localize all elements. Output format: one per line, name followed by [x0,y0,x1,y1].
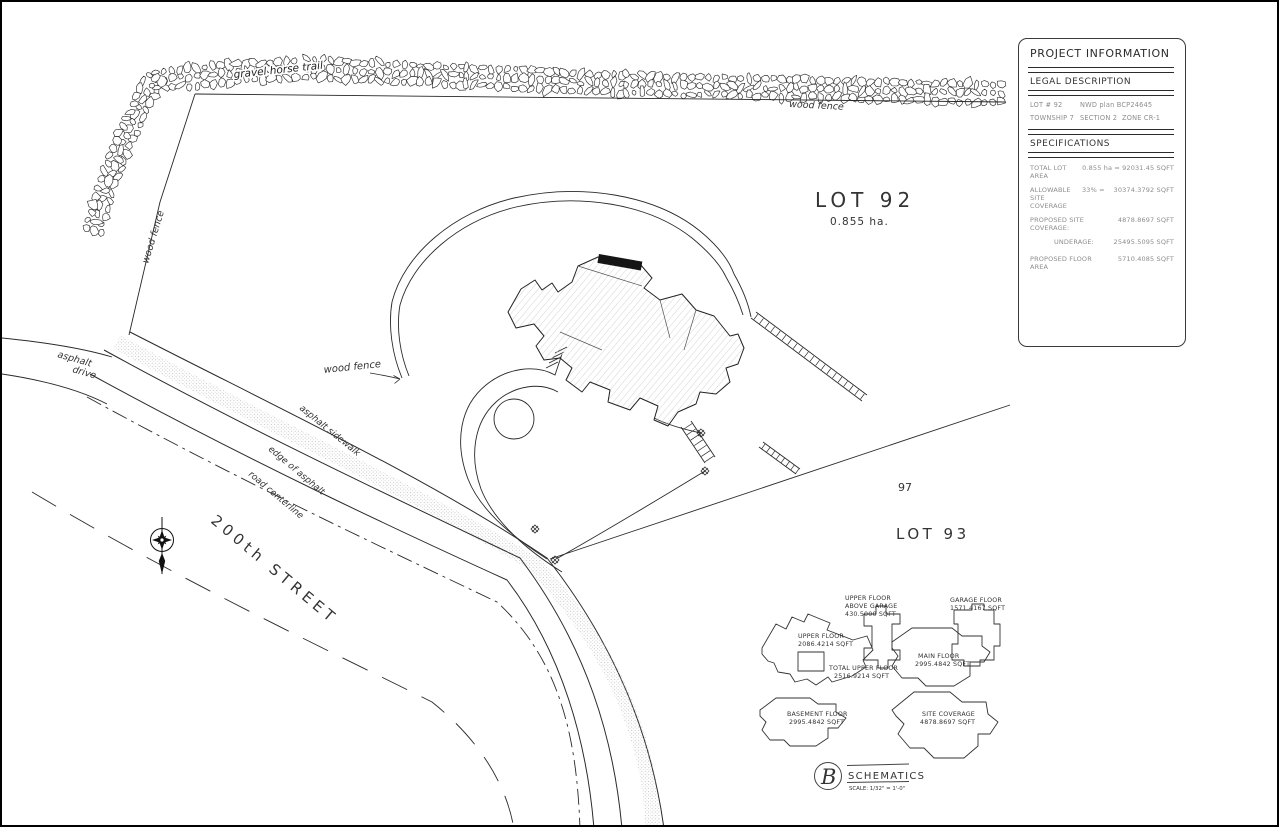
cobble-stone [316,71,328,83]
cobble-stone [858,86,866,98]
cobble-stone [932,88,938,95]
lot92-area: 0.855 ha. [830,216,889,228]
cobble-stone [302,74,309,80]
cobble-stone [459,72,464,78]
logo-scale: SCALE: 1/32" = 1'-0" [849,786,905,792]
divider [1028,129,1174,135]
cobble-stone [990,99,996,106]
cobble-stone [714,81,720,89]
cobble-stone [107,198,114,205]
cobble-stone [386,62,391,68]
hatch-tick [810,356,814,361]
cobble-stone [982,81,990,87]
garage-floor-area: 1571.4167 SQFT [950,605,1005,612]
stairs [681,421,715,463]
cobble-stone [738,76,744,82]
cobble-stone [865,96,873,105]
cobble-stone [358,75,368,83]
hatch-tick [776,331,780,336]
hatch-tick [804,352,808,357]
road-far-dash-curve [32,492,514,827]
hatch-tick [791,465,795,470]
cobble-stone [169,73,178,81]
cobble-stone [970,89,981,96]
planter-circle [494,399,534,439]
cobble-stone [611,76,618,88]
cobble-stone [109,144,117,153]
cobble-stone [536,83,543,94]
cobble-stone [568,88,576,94]
legal-row-1: LOT # 92 NWD plan BCP24645 [1030,101,1174,109]
sidewalk-outer-curve [104,350,622,827]
cobble-stone [132,93,140,100]
spec-label: PROPOSED SITE COVERAGE: [1030,216,1108,232]
street-name-label: 200th STREET [207,511,341,628]
spec-value: 0.855 ha = 92031.45 SQFT [1082,164,1174,172]
cobble-stone [998,91,1005,98]
cobble-stone [443,65,448,70]
spec-percent: 33% = [1082,186,1108,194]
cobble-stone [833,77,840,84]
road-curves [2,332,664,827]
compass-needle [159,553,165,574]
logo-name: SCHEMATICS [848,771,925,782]
cobble-stone [808,92,816,99]
cobble-stone [105,160,111,167]
spec-value: 30374.3792 SQFT [1108,186,1174,194]
cobble-stone [432,78,441,88]
cobble-stone [842,78,852,85]
spec-label: TOTAL LOT AREA [1030,164,1082,180]
panel-title: PROJECT INFORMATION [1030,47,1176,60]
cobble-stone [218,68,225,78]
cobble-stone [585,76,593,86]
cobble-stone [857,77,867,87]
wood-fence-mid-leader [370,373,400,384]
hatch-tick [694,440,703,446]
cobble-stone [686,92,696,98]
cobble-stone [601,70,610,79]
hatch-tick [793,344,797,349]
cobble-stone [448,72,459,77]
cobble-stone [514,67,518,72]
cobble-stone [972,98,981,108]
cobble-stone [433,62,441,70]
cobble-stone [328,56,334,65]
cobble-stone [654,90,662,99]
wood-fence-top-label: wood fence [789,99,844,113]
hatch-tick [698,445,707,451]
total-upper-label: TOTAL UPPER FLOOR [828,665,899,672]
hatch-tick [781,458,785,463]
site-plan-sheet: gravel horse trail wood fence wood fence… [0,0,1279,827]
cobble-stone [470,80,479,90]
cobble-stone [916,80,922,85]
hatch-tick [683,424,692,430]
cobble-stone [400,70,408,77]
cobble-stone [504,83,510,88]
cobble-stone [891,87,898,93]
hatch-tick [796,469,800,474]
cobble-stone [149,83,155,88]
hatch-tick [767,447,771,452]
spec-label: PROPOSED FLOOR AREA [1030,255,1108,271]
garage-floor-label: GARAGE FLOOR [950,597,1002,604]
spec-underage: UNDERAGE: 25495.5095 SQFT [1030,238,1174,246]
cobble-stone [974,80,978,91]
cobble-stone [898,80,907,86]
cobble-stone [161,68,166,75]
cobble-stone [769,91,778,100]
hatch-tick [701,451,710,457]
wood-fence-left-label: wood fence [140,209,167,265]
lot93-title: LOT 93 [896,525,970,543]
cobble-stone [139,113,147,123]
divider [1028,90,1174,96]
cobble-stone [393,60,401,68]
site-coverage-label: SITE COVERAGE [922,711,975,718]
cobble-stone [178,74,184,79]
cobble-stone [632,90,636,95]
cobble-stone [337,68,342,73]
cobble-stone [593,88,600,95]
cobble-stone [136,83,143,94]
hatch-tick [705,456,714,462]
cobble-stone [488,65,494,74]
cobble-stone [486,82,495,88]
cobble-stone [442,80,448,88]
hatch-tick [786,462,790,467]
cobble-stone [511,73,518,83]
spec-allowable-coverage: ALLOWABLE SITE COVERAGE 33% = 30374.3792… [1030,186,1174,210]
cobble-stone [924,93,930,106]
hatch-tick [849,385,853,390]
spec-value: 5710.4085 SQFT [1108,255,1174,263]
lot-line-distance: 97 [898,481,912,494]
spec-total-lot-area: TOTAL LOT AREA 0.855 ha = 92031.45 SQFT [1030,164,1174,180]
cobble-stone [600,87,610,94]
cobble-stone [786,82,794,92]
hatch-tick [771,451,775,456]
main-floor-label: MAIN FLOOR [918,653,960,660]
hatch-tick [776,454,780,459]
cobble-stone [761,75,769,82]
cobble-stone [310,73,316,79]
fence-top-line [195,94,1005,102]
legal-description-heading: LEGAL DESCRIPTION [1030,77,1176,87]
cobble-stone [771,76,777,82]
cobble-stone [851,75,857,86]
house-footprint [508,254,744,426]
cobble-stone [705,74,711,82]
cobble-stone [479,75,486,80]
cobble-stone [883,86,891,95]
cobble-stone [94,185,103,191]
cobble-stone [577,68,585,81]
cobble-stone [808,84,817,92]
cobble-stone [186,84,192,91]
cobble-stone [611,88,615,98]
cobble-stone [368,70,375,74]
cobble-stone [688,74,696,82]
cobble-stone [503,73,510,82]
spec-proposed-coverage: PROPOSED SITE COVERAGE: 4878.8697 SQFT [1030,216,1174,232]
cobble-stone [948,87,956,96]
cobble-stone [956,100,963,107]
cobble-stone [990,90,995,96]
cobble-stone [113,129,123,136]
hatched-strips [751,312,867,474]
cobble-stone [875,89,881,95]
hatch-tick [788,339,792,344]
cobble-stone [209,61,216,71]
cobble-stone [229,59,242,67]
cobble-stone [687,83,696,90]
cobble-stone [401,79,406,85]
hatch-tick [691,434,700,440]
above-garage-label1: UPPER FLOOR [845,595,891,602]
cobble-stone [124,133,131,140]
cobble-stone [963,76,973,88]
spec-label: UNDERAGE: [1030,238,1108,246]
hatch-tick [760,318,764,323]
hatch-tick [762,444,766,449]
hatch-tick [832,373,836,378]
above-garage-area: 430.5000 SQFT [845,611,896,618]
cobble-stone [810,77,816,85]
cobble-stone [85,217,91,222]
cobble-stone [105,152,113,160]
cobble-stone [874,78,882,87]
cobble-stone [519,85,528,92]
cobble-stone [122,116,132,121]
cobble-stone [118,144,124,155]
cobble-stone [559,78,570,85]
hatch-tick [827,369,831,374]
cobble-stone [375,56,384,66]
cobble-stone [631,80,639,89]
cobble-stone [527,86,534,93]
lot92-title: LOT 92 [815,188,915,212]
cobble-stone [478,65,487,70]
spec-value: 4878.8697 SQFT [1108,216,1174,224]
cobble-stone [939,89,946,95]
cobble-stone [640,86,645,97]
cobble-stone [794,83,800,91]
cobble-stone [98,175,105,182]
cobble-stone [383,68,392,75]
cobble-stone [409,62,416,67]
cobble-stone [768,87,778,91]
cobble-stone [559,68,569,78]
cobble-stone [947,79,957,88]
legal-row-2: TOWNSHIP 7 SECTION 2 ZONE CR-1 [1030,114,1174,122]
floor-plan-diagrams [760,604,1000,758]
cobble-stone [779,85,786,92]
plan-number: NWD plan BCP24645 [1080,101,1174,109]
asphalt-drive-label-line2: drive [71,364,97,381]
cobble-stone [464,62,469,72]
cobble-stone [913,96,925,103]
cobble-stone [680,80,687,89]
cobble-stone [201,80,210,88]
cobble-stone [351,75,359,84]
hatch-tick [799,348,803,353]
cobble-stone [672,91,679,96]
cobble-stone [779,93,784,105]
cobble-stone [832,91,842,100]
schematics-logo: B SCHEMATICS SCALE: 1/32" = 1'-0" [815,763,926,793]
cobble-stone [722,74,728,79]
cobble-stone [103,213,111,221]
cobble-stone [125,109,135,114]
cobble-stone [602,80,608,87]
cobble-stone [763,86,768,92]
cobble-stone [369,59,375,68]
main-floor-area: 2995.4842 SQFT [915,661,970,668]
cobble-stone [210,80,218,90]
cobble-stone [577,82,584,86]
cobble-stone [130,101,138,107]
cobble-stone [494,82,503,92]
cobble-stone [470,72,478,80]
cobble-stone [697,92,702,97]
cobble-stone [450,63,457,70]
cobble-stone [663,89,672,98]
cobble-stone [865,86,875,96]
site-coverage-area: 4878.8697 SQFT [920,719,975,726]
cobble-stone [746,90,752,98]
cobble-stone [402,60,408,69]
cobble-stone [753,80,761,90]
cobble-stone [449,82,456,89]
cobble-stone [680,73,687,81]
cobble-stone [185,74,192,82]
section: SECTION 2 [1080,114,1122,122]
divider [1028,67,1174,73]
cobble-stone [191,63,201,74]
cobble-stone [359,69,367,77]
cobble-stone [747,73,752,85]
cobble-stone [799,86,808,93]
cobble-stone [542,85,552,97]
cobble-stone [630,74,639,80]
cobble-stone [384,78,389,84]
cobble-stone [327,75,333,82]
cobble-stone [341,75,351,86]
cobble-stone [825,77,834,85]
logo-initial: B [820,765,836,789]
cobble-stone [623,69,630,78]
cobble-stone [848,85,859,92]
cobble-stone [353,67,358,74]
cobble-stone [762,92,769,98]
hatch-tick [782,335,786,340]
cobble-stone [957,81,962,87]
survey-markers [531,429,709,564]
cobble-stone [569,78,576,83]
cobble-stone [736,83,745,93]
basement-floor-label: BASEMENT FLOOR [787,711,848,718]
cobble-stone [656,81,662,86]
above-garage-label2: ABOVE GARAGE [845,603,897,610]
cobble-stone [569,70,576,77]
cobble-stone [695,73,705,80]
cobble-stone [125,141,132,149]
cobble-stone [956,88,964,97]
hatch-tick [855,390,859,395]
cobble-stone [753,74,761,81]
cobble-stone [120,122,128,130]
cobble-stone [703,83,714,91]
cobble-stone [817,85,825,92]
cobble-stone [624,81,629,88]
cobble-stone [392,70,399,79]
zone: ZONE CR-1 [1122,114,1174,122]
cobble-stone [343,64,349,76]
cobble-stone [410,68,415,76]
upper-floor-area: 2086.4214 SQFT [798,641,853,648]
cobble-stone [99,229,105,236]
cobble-stone [981,89,987,96]
hatch-tick [861,394,865,399]
cobble-stone [777,75,787,83]
cobble-stone [138,123,143,128]
cobble-stone [529,74,535,87]
cobble-stone [816,76,825,85]
spec-label: ALLOWABLE SITE COVERAGE [1030,186,1082,210]
basement-floor-area: 2995.4842 SQFT [789,719,844,726]
cobble-stone [106,205,111,213]
cobble-stone [560,86,567,93]
cobble-stone [713,91,720,98]
cobble-stone [496,66,503,74]
cobble-stone [218,78,226,87]
cobble-stone [584,87,593,96]
cobble-stone [195,83,200,91]
cobble-stone [738,94,743,100]
cobble-stone [350,60,362,67]
cobble-stone [183,61,191,73]
cobble-stone [504,65,511,72]
spec-proposed-floor-area: PROPOSED FLOOR AREA 5710.4085 SQFT [1030,255,1174,271]
spec-value: 25495.5095 SQFT [1108,238,1174,246]
cobble-stone [997,81,1006,88]
hatch-tick [771,327,775,332]
cobble-stone [459,64,465,69]
total-upper-area: 2516.9214 SQFT [834,673,889,680]
cobble-stone [390,78,400,86]
cobble-stone [940,78,947,86]
upper-floor-stairwell [798,652,824,671]
cobble-stone [545,76,551,84]
compass-rose-icon [151,517,174,574]
cobble-stone [938,98,948,105]
cobble-stone [175,81,186,89]
lot-number: LOT # 92 [1030,101,1080,109]
cobble-stone [672,82,677,90]
cobble-stone [800,74,809,83]
cobble-stone [997,98,1006,105]
hatch-tick [754,314,758,319]
cobble-stone [87,199,97,209]
cobble-stone [90,219,103,225]
upper-floor-label: UPPER FLOOR [798,633,844,640]
hatch-tick [765,323,769,328]
cobble-stone [824,85,834,93]
cobble-stone [990,82,995,89]
hatch-tick [838,377,842,382]
